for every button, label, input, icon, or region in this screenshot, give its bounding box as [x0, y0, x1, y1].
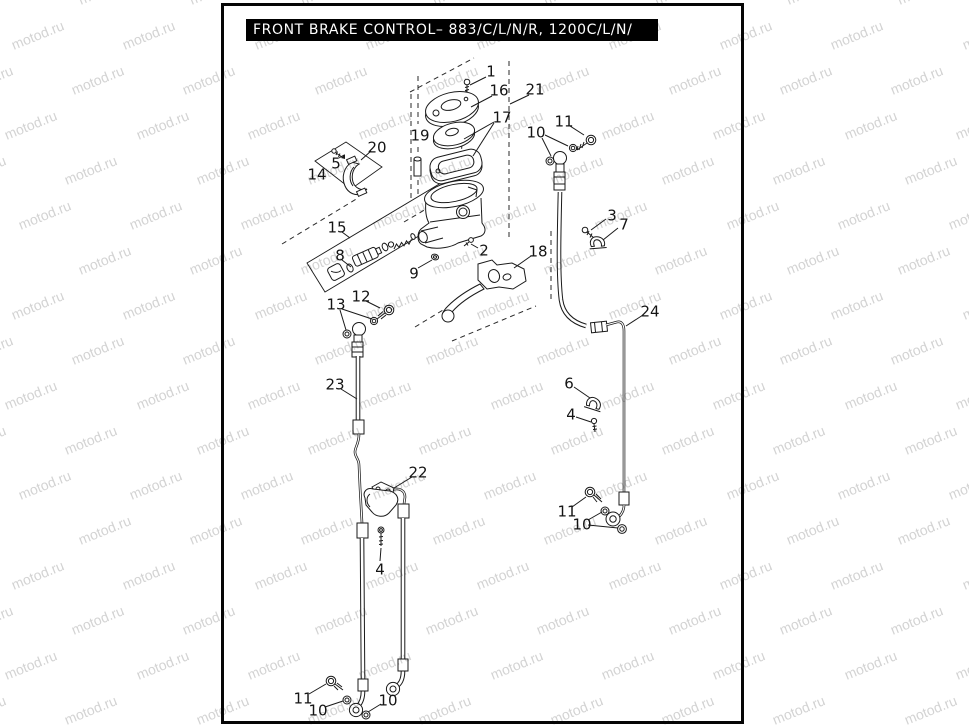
- hose-junction-bracket: [364, 482, 398, 516]
- branch-brake-hose: [386, 489, 409, 696]
- piston-retainer: [346, 263, 355, 273]
- callout-number: 11: [554, 113, 573, 131]
- callout-number: 3: [607, 207, 617, 225]
- cable-clip: [584, 396, 603, 412]
- callout-number: 10: [308, 702, 327, 720]
- callout-leader-line: [591, 219, 606, 230]
- brake-lever: [442, 260, 526, 322]
- callout-number: 2: [479, 242, 489, 260]
- callout-number: 13: [326, 296, 345, 314]
- main-brake-hose: [349, 356, 368, 717]
- reservoir-diaphragm: [428, 147, 484, 186]
- callout-number: 21: [525, 81, 544, 99]
- junction-screw: [378, 527, 384, 546]
- upper-hose-fitting: [554, 152, 567, 191]
- callout-number: 23: [325, 376, 344, 394]
- callout-leader-line: [603, 228, 618, 240]
- callout-number: 24: [640, 303, 659, 321]
- master-cylinder-body: [417, 176, 486, 249]
- parts-diagram-page: 1162117191011205143715829181213242364221…: [0, 0, 969, 727]
- callout-leader-line: [471, 244, 478, 248]
- diagram-art: 1162117191011205143715829181213242364221…: [0, 0, 969, 727]
- bottom-left-banjo-bolt: [326, 676, 343, 690]
- callout-leader-line: [380, 548, 381, 561]
- callout-number: 9: [409, 265, 419, 283]
- callout-leader-line: [470, 77, 486, 85]
- reservoir-cover-screw: [464, 79, 470, 92]
- callout-leader-line: [418, 260, 432, 268]
- callout-leader-line: [325, 701, 343, 707]
- clip-screw: [591, 418, 597, 432]
- page-title: FRONT BRAKE CONTROL– 883/C/L/N/R, 1200C/…: [253, 22, 632, 38]
- title-bar: FRONT BRAKE CONTROL– 883/C/L/N/R, 1200C/…: [246, 19, 658, 41]
- callout-number: 15: [327, 219, 346, 237]
- callout-number: 4: [375, 561, 385, 579]
- callout-number: 8: [335, 247, 345, 265]
- hose-clamp: [588, 235, 607, 249]
- callout-number: 12: [351, 288, 370, 306]
- callout-number: 18: [528, 243, 547, 261]
- callout-leader-line: [342, 309, 372, 319]
- callout-number: 5: [331, 155, 341, 173]
- handlebar-clamp: [343, 156, 367, 196]
- callout-number: 1: [486, 63, 496, 81]
- upper-banjo-bolt: [577, 135, 596, 150]
- retaining-ring: [431, 253, 440, 261]
- pivot-pin: [414, 157, 421, 176]
- callout-leader-line: [545, 135, 568, 146]
- piston: [352, 245, 383, 267]
- callout-number: 6: [564, 375, 574, 393]
- callout-number: 10: [378, 692, 397, 710]
- callout-number: 10: [572, 516, 591, 534]
- mid-hose-fitting: [352, 323, 366, 358]
- callout-leader-line: [576, 417, 591, 422]
- callout-number: 19: [410, 127, 429, 145]
- callout-leader-line: [574, 387, 590, 398]
- callout-number: 17: [492, 109, 511, 127]
- lower-right-banjo-bolt: [585, 487, 602, 502]
- piston-cup: [381, 242, 394, 252]
- callout-number: 16: [489, 82, 508, 100]
- piston-spring: [394, 233, 416, 249]
- piston-boot: [327, 263, 346, 282]
- callout-number: 14: [307, 166, 326, 184]
- callout-number: 7: [619, 216, 629, 234]
- callout-number: 10: [526, 124, 545, 142]
- callout-number: 22: [408, 464, 427, 482]
- assembly-axis-lines: [282, 58, 551, 341]
- callout-number: 20: [367, 139, 386, 157]
- callout-number: 4: [566, 406, 576, 424]
